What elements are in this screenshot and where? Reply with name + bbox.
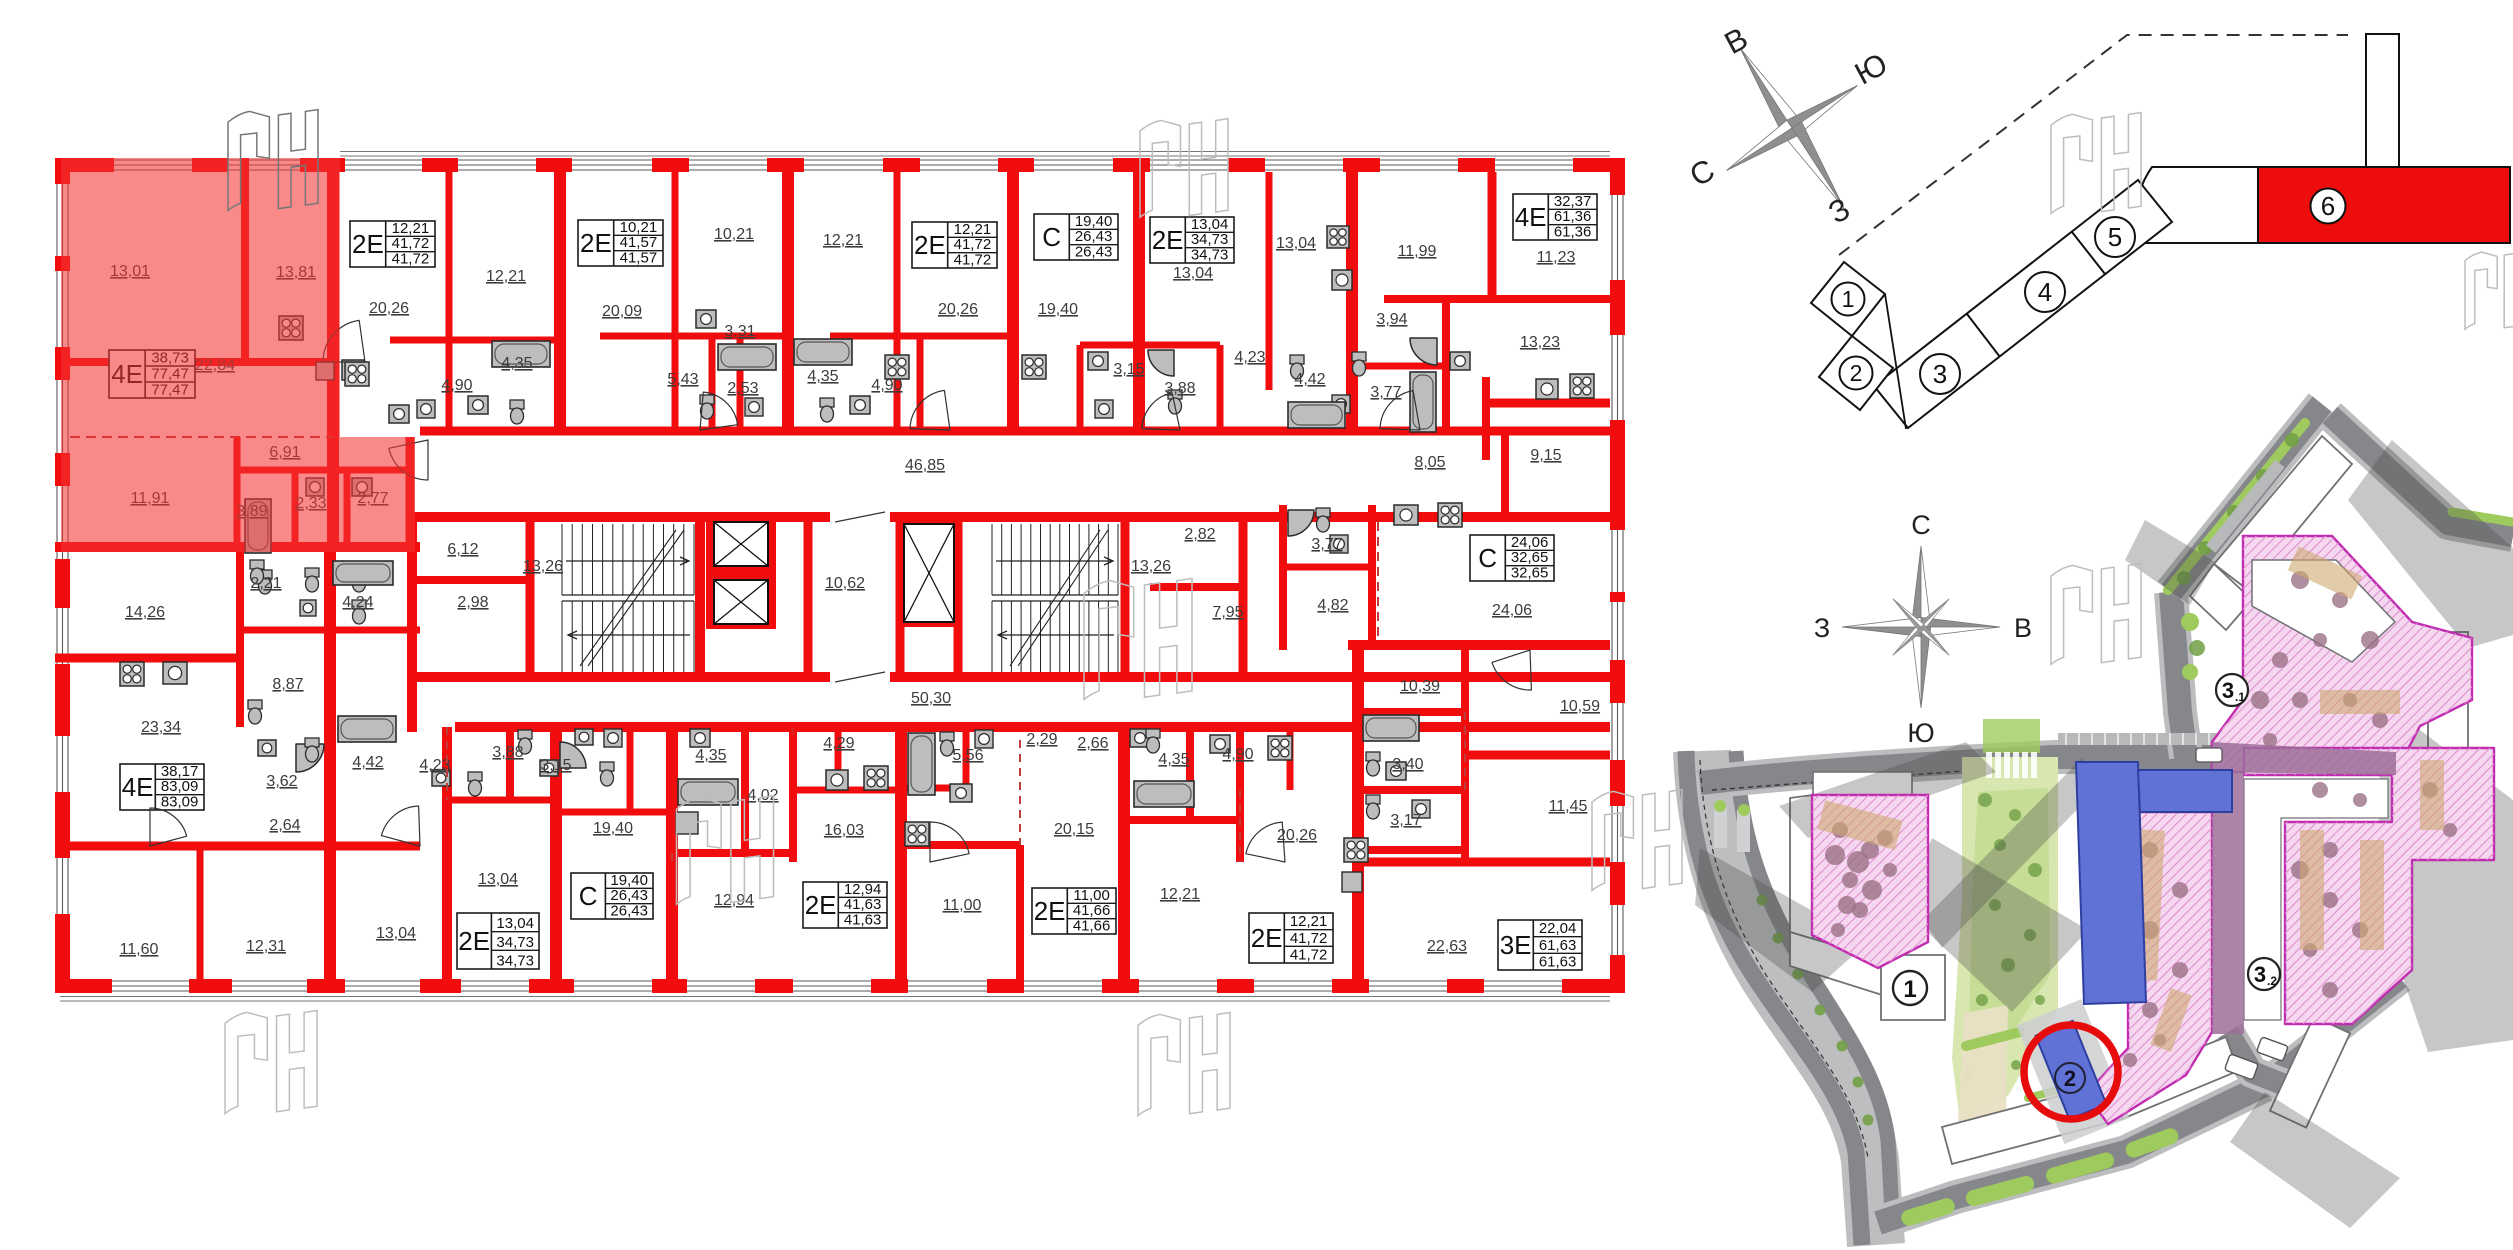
svg-text:11,60: 11,60 bbox=[120, 941, 159, 958]
svg-text:4,23: 4,23 bbox=[1234, 349, 1265, 366]
svg-text:4Е: 4Е bbox=[1515, 202, 1547, 232]
svg-text:26,43: 26,43 bbox=[1075, 244, 1113, 261]
svg-text:С: С bbox=[1478, 543, 1497, 573]
svg-text:3,15: 3,15 bbox=[1113, 361, 1144, 378]
svg-text:61,36: 61,36 bbox=[1554, 224, 1592, 241]
svg-text:61,63: 61,63 bbox=[1539, 937, 1577, 954]
svg-text:8,87: 8,87 bbox=[272, 676, 303, 693]
svg-text:34,73: 34,73 bbox=[496, 953, 534, 970]
svg-text:9,15: 9,15 bbox=[1530, 447, 1561, 464]
svg-text:3,40: 3,40 bbox=[1392, 756, 1423, 773]
svg-text:2Е: 2Е bbox=[580, 228, 612, 258]
svg-text:41,63: 41,63 bbox=[844, 912, 882, 929]
svg-text:С: С bbox=[1684, 152, 1720, 193]
svg-text:3: 3 bbox=[1933, 359, 1947, 389]
svg-text:11,99: 11,99 bbox=[1398, 243, 1437, 260]
svg-text:4,35: 4,35 bbox=[695, 747, 726, 764]
svg-text:4,42: 4,42 bbox=[1294, 371, 1325, 388]
svg-text:24,06: 24,06 bbox=[1492, 602, 1532, 619]
svg-text:41,72: 41,72 bbox=[392, 251, 430, 268]
svg-text:В: В bbox=[1719, 20, 1754, 61]
svg-text:2Е: 2Е bbox=[805, 890, 837, 920]
svg-text:41,57: 41,57 bbox=[620, 250, 658, 267]
svg-text:4,42: 4,42 bbox=[352, 754, 383, 771]
svg-text:3,31: 3,31 bbox=[724, 323, 755, 340]
svg-text:1: 1 bbox=[1842, 286, 1855, 312]
svg-text:41,72: 41,72 bbox=[954, 252, 992, 269]
svg-text:83,09: 83,09 bbox=[161, 794, 199, 811]
svg-text:12,21: 12,21 bbox=[1160, 886, 1200, 903]
svg-text:8,05: 8,05 bbox=[1414, 454, 1445, 471]
svg-text:23,34: 23,34 bbox=[141, 719, 181, 736]
svg-text:13,04: 13,04 bbox=[496, 915, 534, 932]
svg-text:4,90: 4,90 bbox=[1222, 746, 1253, 763]
svg-text:4,90: 4,90 bbox=[871, 377, 902, 394]
svg-text:6: 6 bbox=[2321, 191, 2335, 221]
svg-text:13,26: 13,26 bbox=[1131, 558, 1171, 575]
svg-text:20,26: 20,26 bbox=[369, 300, 409, 317]
svg-text:7,95: 7,95 bbox=[1212, 604, 1243, 621]
svg-text:12,21: 12,21 bbox=[823, 232, 863, 249]
svg-text:С: С bbox=[1042, 222, 1061, 252]
svg-text:3,88: 3,88 bbox=[492, 744, 523, 761]
svg-text:11,45: 11,45 bbox=[1549, 798, 1588, 815]
svg-text:2,66: 2,66 bbox=[1077, 735, 1108, 752]
svg-text:13,04: 13,04 bbox=[376, 925, 416, 942]
svg-text:2,64: 2,64 bbox=[269, 817, 300, 834]
svg-text:.1: .1 bbox=[2235, 690, 2245, 704]
svg-text:41,72: 41,72 bbox=[1290, 930, 1328, 947]
svg-text:11,23: 11,23 bbox=[1537, 249, 1576, 266]
svg-text:20,09: 20,09 bbox=[602, 303, 642, 320]
svg-text:4,90: 4,90 bbox=[441, 377, 472, 394]
svg-text:22,63: 22,63 bbox=[1427, 938, 1467, 955]
svg-text:4Е: 4Е bbox=[122, 772, 154, 802]
svg-text:19,40: 19,40 bbox=[593, 820, 633, 837]
svg-text:2,29: 2,29 bbox=[1026, 731, 1057, 748]
svg-text:19,40: 19,40 bbox=[1038, 301, 1078, 318]
svg-text:41,66: 41,66 bbox=[1073, 918, 1111, 935]
svg-text:5: 5 bbox=[2108, 222, 2122, 252]
svg-text:12,94: 12,94 bbox=[714, 892, 754, 909]
svg-text:13,04: 13,04 bbox=[1173, 265, 1213, 282]
svg-text:46,85: 46,85 bbox=[905, 457, 945, 474]
svg-text:22,04: 22,04 bbox=[1539, 920, 1577, 937]
svg-text:3,15: 3,15 bbox=[540, 757, 571, 774]
svg-text:4,35: 4,35 bbox=[807, 368, 838, 385]
svg-text:10,59: 10,59 bbox=[1560, 698, 1600, 715]
svg-text:4,24: 4,24 bbox=[342, 594, 373, 611]
svg-text:14,26: 14,26 bbox=[125, 604, 165, 621]
svg-text:20,15: 20,15 bbox=[1054, 821, 1094, 838]
svg-text:С: С bbox=[579, 881, 598, 911]
svg-text:12,31: 12,31 bbox=[246, 938, 286, 955]
svg-text:2,82: 2,82 bbox=[1184, 526, 1215, 543]
svg-text:13,04: 13,04 bbox=[478, 871, 518, 888]
svg-text:3,17: 3,17 bbox=[1390, 812, 1421, 829]
svg-text:2Е: 2Е bbox=[1034, 896, 1066, 926]
svg-text:10,39: 10,39 bbox=[1400, 678, 1440, 695]
svg-text:13,26: 13,26 bbox=[523, 558, 563, 575]
svg-text:10,21: 10,21 bbox=[714, 226, 754, 243]
svg-text:50,30: 50,30 bbox=[911, 690, 951, 707]
svg-text:4,29: 4,29 bbox=[823, 735, 854, 752]
svg-text:3,77: 3,77 bbox=[1311, 536, 1342, 553]
svg-text:13,23: 13,23 bbox=[1520, 334, 1560, 351]
svg-text:6,12: 6,12 bbox=[447, 541, 478, 558]
svg-text:3,88: 3,88 bbox=[1164, 380, 1195, 397]
svg-text:2Е: 2Е bbox=[1152, 225, 1184, 255]
svg-text:2Е: 2Е bbox=[1251, 923, 1283, 953]
svg-text:3Е: 3Е bbox=[1500, 930, 1532, 960]
svg-text:2,53: 2,53 bbox=[727, 380, 758, 397]
svg-text:34,73: 34,73 bbox=[1191, 247, 1229, 264]
svg-text:41,72: 41,72 bbox=[1290, 947, 1328, 964]
svg-text:З: З bbox=[1823, 191, 1856, 231]
svg-text:Ю: Ю bbox=[1907, 718, 1934, 748]
svg-text:2,21: 2,21 bbox=[250, 575, 281, 592]
svg-text:10,62: 10,62 bbox=[825, 575, 865, 592]
svg-text:5,43: 5,43 bbox=[667, 371, 698, 388]
svg-text:3: 3 bbox=[2254, 962, 2266, 987]
svg-text:26,43: 26,43 bbox=[610, 903, 648, 920]
svg-text:4,82: 4,82 bbox=[1317, 597, 1348, 614]
svg-text:16,03: 16,03 bbox=[824, 822, 864, 839]
svg-text:3: 3 bbox=[2222, 678, 2234, 703]
svg-text:32,65: 32,65 bbox=[1511, 565, 1549, 582]
svg-text:2: 2 bbox=[1850, 360, 1863, 386]
svg-text:4,23: 4,23 bbox=[419, 757, 450, 774]
svg-text:2,98: 2,98 bbox=[457, 594, 488, 611]
svg-text:13,04: 13,04 bbox=[1276, 235, 1316, 252]
svg-text:5,56: 5,56 bbox=[952, 747, 983, 764]
svg-text:2: 2 bbox=[2064, 1066, 2076, 1091]
svg-text:В: В bbox=[2014, 613, 2032, 643]
svg-text:3,94: 3,94 bbox=[1376, 311, 1407, 328]
svg-text:20,26: 20,26 bbox=[938, 301, 978, 318]
svg-text:1: 1 bbox=[1903, 976, 1916, 1003]
svg-text:Ю: Ю bbox=[1849, 46, 1893, 92]
svg-text:11,00: 11,00 bbox=[943, 897, 982, 914]
svg-text:12,21: 12,21 bbox=[486, 268, 526, 285]
svg-text:4,35: 4,35 bbox=[501, 355, 532, 372]
svg-text:2Е: 2Е bbox=[458, 926, 490, 956]
svg-text:3,77: 3,77 bbox=[1370, 384, 1401, 401]
svg-text:34,73: 34,73 bbox=[496, 934, 534, 951]
svg-text:4,35: 4,35 bbox=[1158, 751, 1189, 768]
svg-text:2Е: 2Е bbox=[914, 230, 946, 260]
svg-text:61,63: 61,63 bbox=[1539, 954, 1577, 971]
svg-text:З: З bbox=[1814, 613, 1830, 643]
svg-text:3,62: 3,62 bbox=[266, 773, 297, 790]
svg-text:2Е: 2Е bbox=[352, 229, 384, 259]
svg-text:С: С bbox=[1911, 510, 1931, 540]
svg-text:12,21: 12,21 bbox=[1290, 913, 1328, 930]
svg-text:.2: .2 bbox=[2267, 974, 2277, 988]
svg-text:4: 4 bbox=[2038, 277, 2052, 307]
